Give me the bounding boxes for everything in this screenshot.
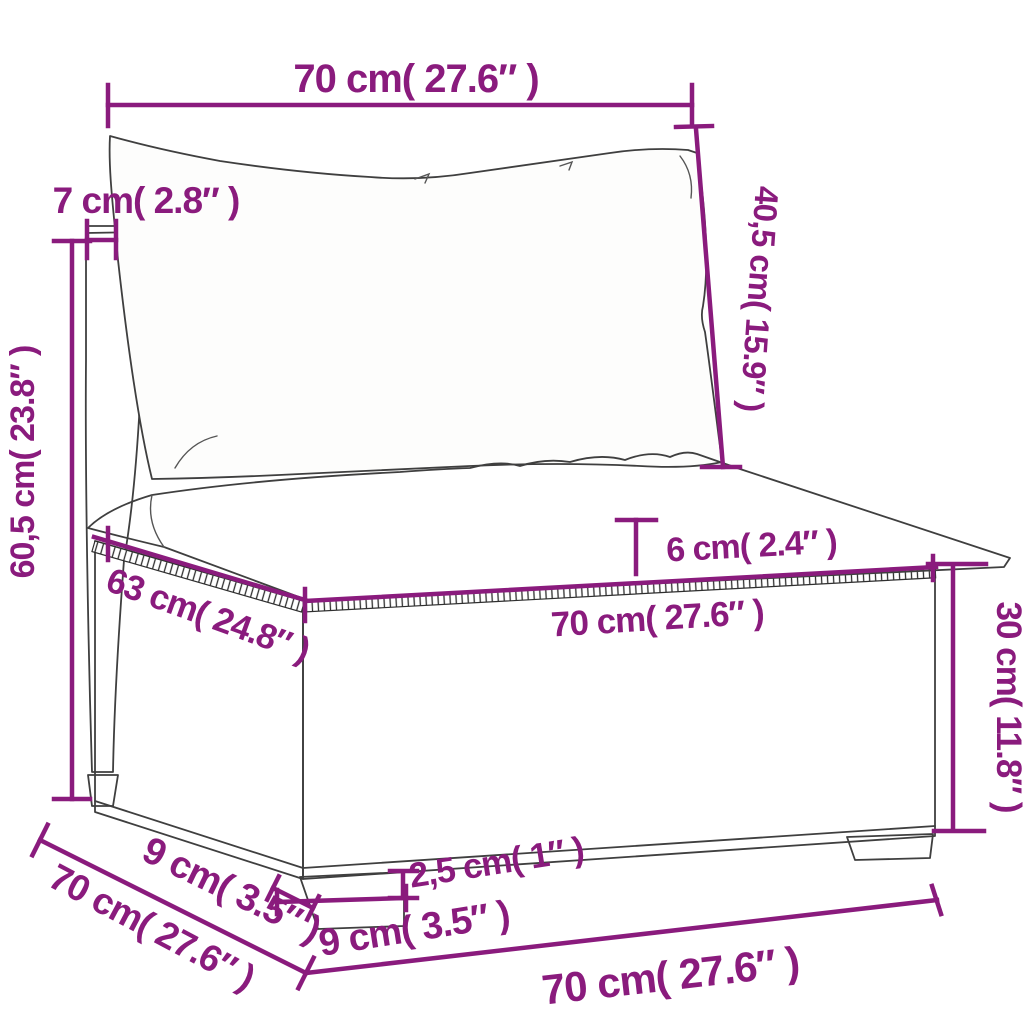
dim-back-width-label: 70 cm( 27.6″ ): [293, 57, 538, 101]
dim-back-cushion-height-label: 40,5 cm( 15.9″ ): [733, 185, 786, 412]
dim-total-height-label: 60,5 cm( 23.8″ ): [4, 346, 42, 579]
dim-leg-height-label: 2,5 cm( 1″ ): [406, 830, 586, 896]
dim-backrest-thickness-label: 7 cm( 2.8″ ): [53, 180, 240, 221]
back-left-foot: [88, 775, 118, 806]
dim-base-height-lines: [928, 564, 986, 831]
furniture-dimension-diagram: 70 cm( 27.6″ ) 40,5 cm( 15.9″ ) 7 cm( 2.…: [0, 0, 1024, 1024]
dim-seat-width-label: 70 cm( 27.6″ ): [550, 593, 765, 645]
dim-total-height-lines: [54, 241, 90, 799]
dim-seat-cushion-thickness-lines: [617, 520, 656, 574]
dim-base-height-label: 30 cm( 11.8″ ): [989, 602, 1024, 813]
dim-seat-cushion-thickness-label: 6 cm( 2.4″ ): [665, 523, 837, 570]
sofa-diagram-canvas: 70 cm( 27.6″ ) 40,5 cm( 15.9″ ) 7 cm( 2.…: [0, 0, 1024, 1024]
dim-base-front-width-label: 70 cm( 27.6″ ): [539, 938, 801, 1014]
